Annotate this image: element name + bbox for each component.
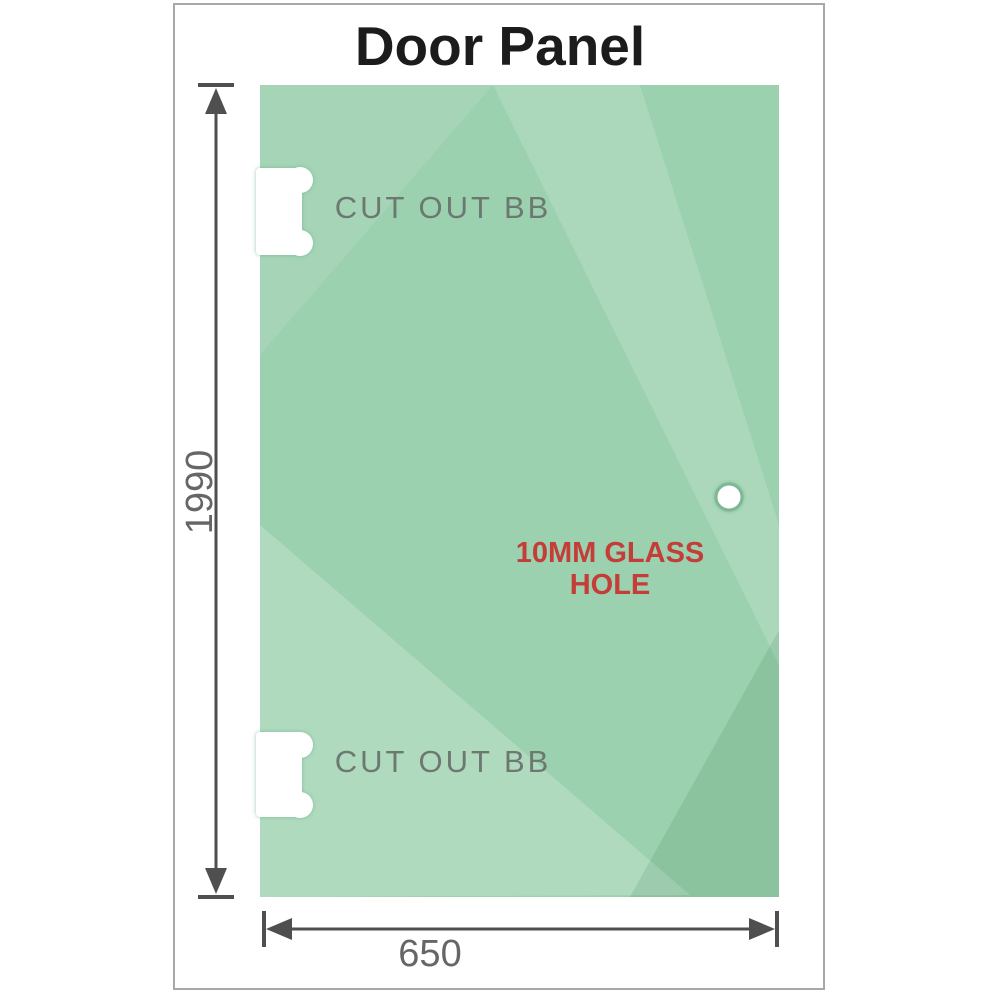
glass-hole-label: 10MM GLASS HOLE [488,537,732,601]
cutout-label-top: CUT OUT BB [313,191,573,225]
diagram-canvas: Door Panel [0,0,1000,1000]
arrow-up-icon [205,88,227,114]
cutout-label-bottom: CUT OUT BB [313,745,573,779]
door-panel-drawing [0,0,1000,1000]
arrow-right-icon [749,918,775,940]
width-dimension-value: 650 [330,934,530,974]
height-value-text: 1990 [180,450,220,535]
arrow-left-icon [266,918,292,940]
glass-hole [716,484,742,510]
arrow-down-icon [205,868,227,894]
